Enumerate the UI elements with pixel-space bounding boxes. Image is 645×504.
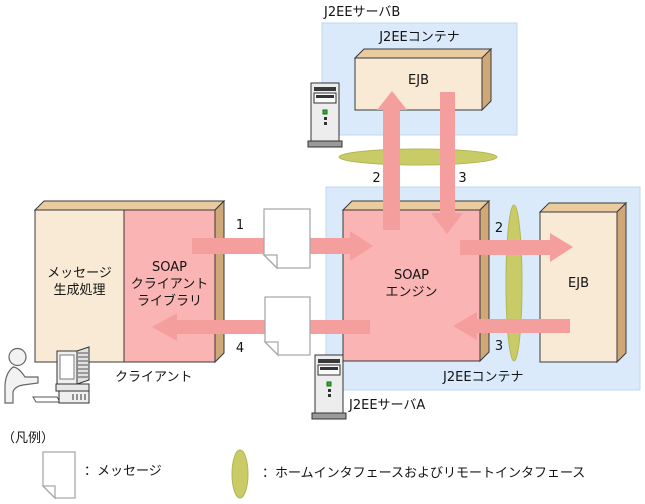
label-ejb-b: EJB — [355, 73, 482, 89]
label-j2ee-server-a: J2EEサーバA — [349, 398, 425, 414]
message-document-icon — [264, 209, 310, 268]
label-message-generation: メッセージ 生成処理 — [35, 265, 124, 299]
label-j2ee-container-a: J2EEコンテナ — [443, 370, 524, 386]
legend-title: （凡例） — [2, 431, 54, 447]
keyboard-icon — [33, 397, 60, 402]
step-number-b-invoke: 2 — [370, 171, 383, 187]
label-client: クライアント — [115, 370, 192, 386]
label-ejb-a: EJB — [540, 276, 617, 292]
interface-ellipse-server-a — [506, 205, 522, 361]
step-number-client-response: 4 — [233, 341, 247, 357]
step-number-a-return: 3 — [492, 339, 506, 355]
label-soap-engine: SOAP エンジン — [343, 267, 480, 301]
step-number-b-return: 3 — [456, 171, 469, 187]
label-j2ee-server-b: J2EEサーバB — [324, 5, 400, 21]
interface-ellipse-server-b — [339, 149, 497, 165]
diagram-canvas — [0, 0, 645, 504]
label-j2ee-container-b: J2EEコンテナ — [322, 30, 517, 46]
message-document-icon — [265, 297, 310, 355]
step-number-client-request: 1 — [233, 218, 247, 234]
soap-message-flow-diagram: J2EEサーバB J2EEコンテナ EJB 2 3 メッセージ 生成処理 SOA… — [0, 0, 645, 504]
legend-interface-label: ：ホームインタフェースおよびリモートインタフェース — [262, 466, 585, 482]
server-tower-b-icon — [308, 83, 342, 147]
server-tower-a-icon — [312, 355, 346, 419]
person-head-icon — [9, 349, 26, 366]
legend-message-icon — [43, 452, 75, 498]
monitor-icon — [56, 347, 89, 403]
legend-message-label: ：メッセージ — [84, 464, 162, 480]
label-soap-client-library: SOAP クライアント ライブラリ — [124, 259, 215, 310]
step-number-a-invoke: 2 — [492, 221, 506, 237]
legend-interface-icon — [232, 450, 248, 498]
